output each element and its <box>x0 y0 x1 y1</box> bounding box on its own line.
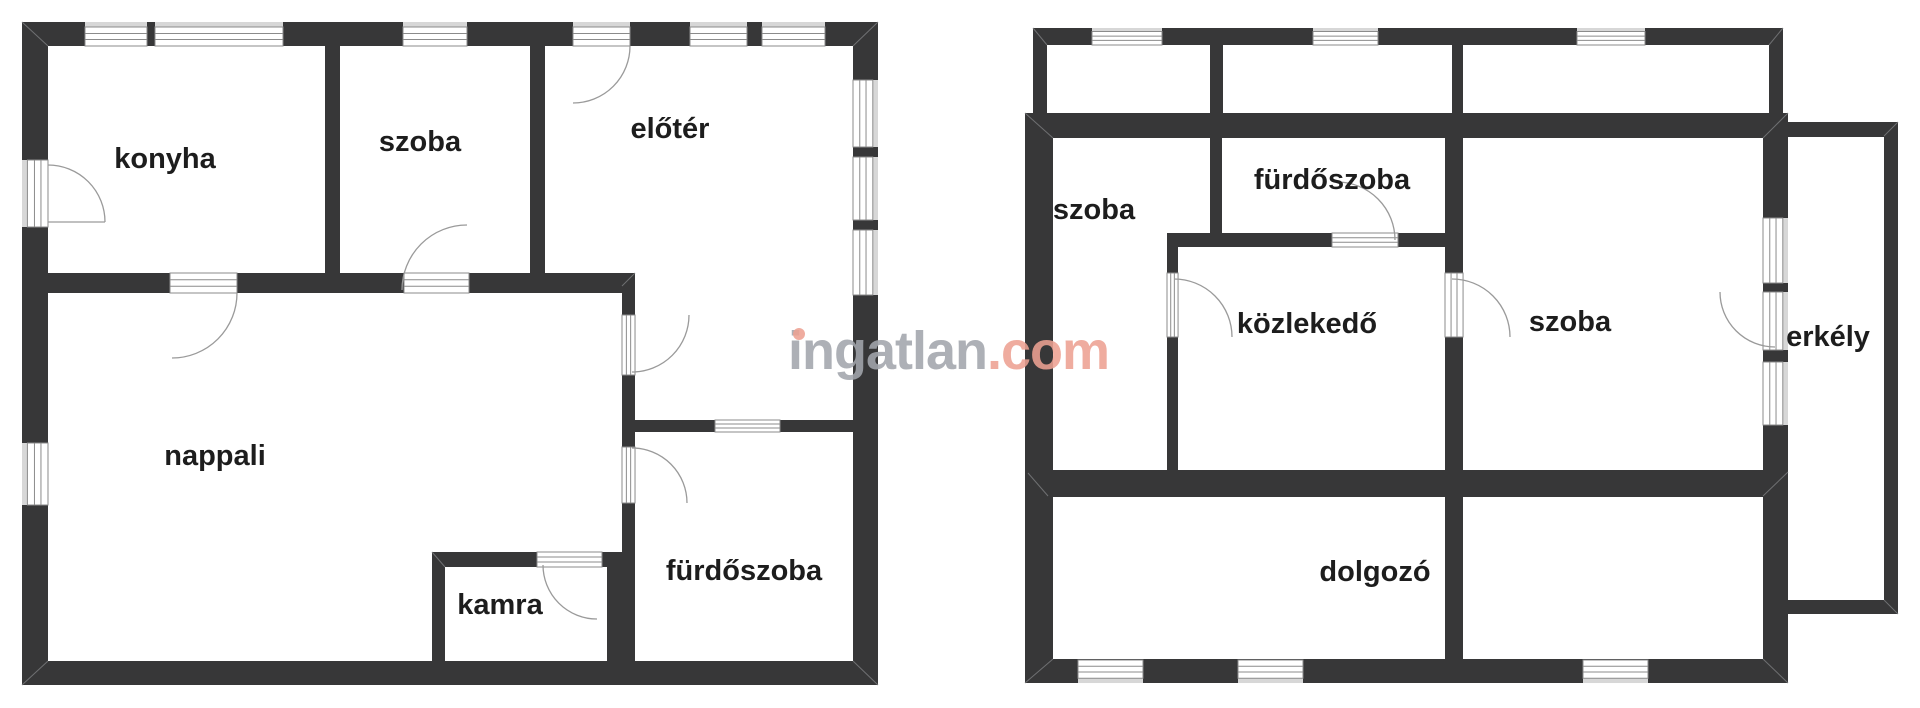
room-label: előtér <box>631 113 710 145</box>
window-icon <box>1577 28 1645 45</box>
window-icon <box>22 443 48 505</box>
wall-segment <box>1210 138 1222 237</box>
door-swing-arc <box>632 448 687 503</box>
door-frame-icon <box>404 273 469 293</box>
floorplan-image: konyha szoba előtér nappali kamra fürdős… <box>0 0 1920 708</box>
door-swing-arc <box>172 293 237 358</box>
wall-segment <box>1167 233 1463 247</box>
wall-segment <box>46 273 635 293</box>
room-label: szoba <box>1053 194 1136 226</box>
floorplan-svg: konyha szoba előtér nappali kamra fürdős… <box>0 0 1920 708</box>
balcony-door-frame-icon <box>1763 292 1788 350</box>
window-icon <box>853 80 878 147</box>
door-frame-icon <box>1332 233 1398 247</box>
room-label: fürdőszoba <box>1254 164 1411 196</box>
wall-segment <box>1025 113 1788 138</box>
window-icon <box>1763 362 1788 425</box>
wall-segment <box>1884 122 1898 614</box>
window-icon <box>403 22 467 46</box>
door-swing-arc <box>573 46 630 103</box>
window-icon <box>1763 218 1788 283</box>
wall-segment <box>1452 43 1463 115</box>
wall-segment <box>325 44 340 275</box>
window-icon <box>1092 28 1162 45</box>
window-icon <box>1078 660 1143 683</box>
wall-segment <box>1445 138 1463 660</box>
wall-segment <box>432 552 445 664</box>
watermark-tld: .com <box>987 321 1109 381</box>
window-icon <box>1238 660 1303 683</box>
wall-segment <box>22 22 48 685</box>
door-swing-arc <box>632 315 689 372</box>
wall-segment <box>1782 600 1898 614</box>
door-frame-icon <box>622 315 635 375</box>
wall-segment <box>607 552 622 664</box>
door-frame-icon <box>537 552 602 567</box>
watermark: ingatlan.com <box>788 321 1109 381</box>
window-icon <box>762 22 825 46</box>
door-swing-arc <box>48 165 105 222</box>
room-label: kamra <box>457 589 543 621</box>
wall-segment <box>1769 28 1783 115</box>
door-frame-icon <box>170 273 237 293</box>
window-icon <box>853 157 878 220</box>
window-icon <box>853 230 878 295</box>
watermark-text: ingatlan.com <box>788 321 1109 381</box>
room-label: fürdőszoba <box>666 555 823 587</box>
room-label: erkély <box>1786 321 1870 353</box>
wall-segment <box>1048 470 1763 497</box>
door-frame-icon <box>622 447 635 503</box>
door-frame-icon <box>1167 273 1178 337</box>
window-icon <box>155 22 283 46</box>
room-label: szoba <box>1529 306 1612 338</box>
room-label: dolgozó <box>1319 556 1430 588</box>
window-icon <box>85 22 147 46</box>
wall-segment <box>530 44 545 275</box>
door-frame-icon <box>1445 273 1463 337</box>
wall-segment <box>1210 43 1223 115</box>
watermark-i-dot-icon <box>793 328 805 340</box>
room-label: közlekedő <box>1237 308 1377 340</box>
wall-segment <box>1033 28 1047 115</box>
floorplan-left: konyha szoba előtér nappali kamra fürdős… <box>22 22 878 685</box>
wall-segment <box>22 661 878 685</box>
wall-segment <box>1025 113 1053 683</box>
window-icon <box>690 22 747 46</box>
interior-window-icon <box>715 420 780 432</box>
door-swing-arc <box>1174 279 1232 337</box>
room-label: nappali <box>164 440 266 472</box>
door-frame-icon <box>22 160 48 227</box>
window-icon <box>1313 28 1378 45</box>
watermark-brand: ingatlan <box>788 321 987 381</box>
room-label: konyha <box>114 143 216 175</box>
room-label: szoba <box>379 126 462 158</box>
door-swing-arc <box>543 565 597 619</box>
floorplan-right: szoba fürdőszoba közlekedő szoba erkély … <box>1025 28 1898 683</box>
entry-door-frame-icon <box>573 22 630 46</box>
window-icon <box>1583 660 1648 683</box>
wall-segment <box>1786 122 1898 137</box>
